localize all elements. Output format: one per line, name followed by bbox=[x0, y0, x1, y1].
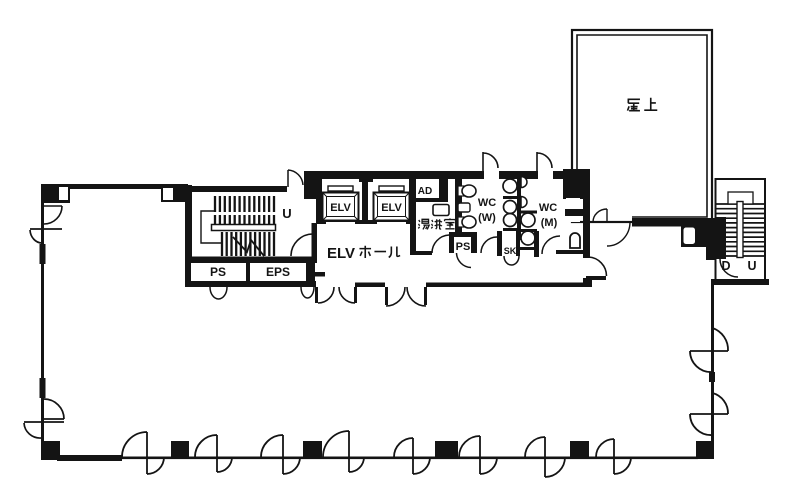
svg-text:ELV: ELV bbox=[381, 202, 402, 214]
svg-text:ELV: ELV bbox=[327, 245, 355, 262]
svg-text:(W): (W) bbox=[478, 212, 496, 224]
svg-text:WC: WC bbox=[478, 197, 496, 209]
svg-text:U: U bbox=[282, 206, 291, 221]
svg-text:PS: PS bbox=[210, 265, 226, 279]
svg-text:PS: PS bbox=[456, 241, 471, 253]
svg-text:EPS: EPS bbox=[266, 265, 290, 279]
svg-text:(M): (M) bbox=[541, 217, 558, 229]
svg-text:WC: WC bbox=[539, 202, 557, 214]
svg-text:U: U bbox=[747, 259, 756, 273]
svg-text:SK: SK bbox=[504, 246, 517, 256]
svg-text:D: D bbox=[721, 259, 730, 273]
svg-text:AD: AD bbox=[418, 186, 432, 197]
svg-text:ELV: ELV bbox=[330, 202, 351, 214]
